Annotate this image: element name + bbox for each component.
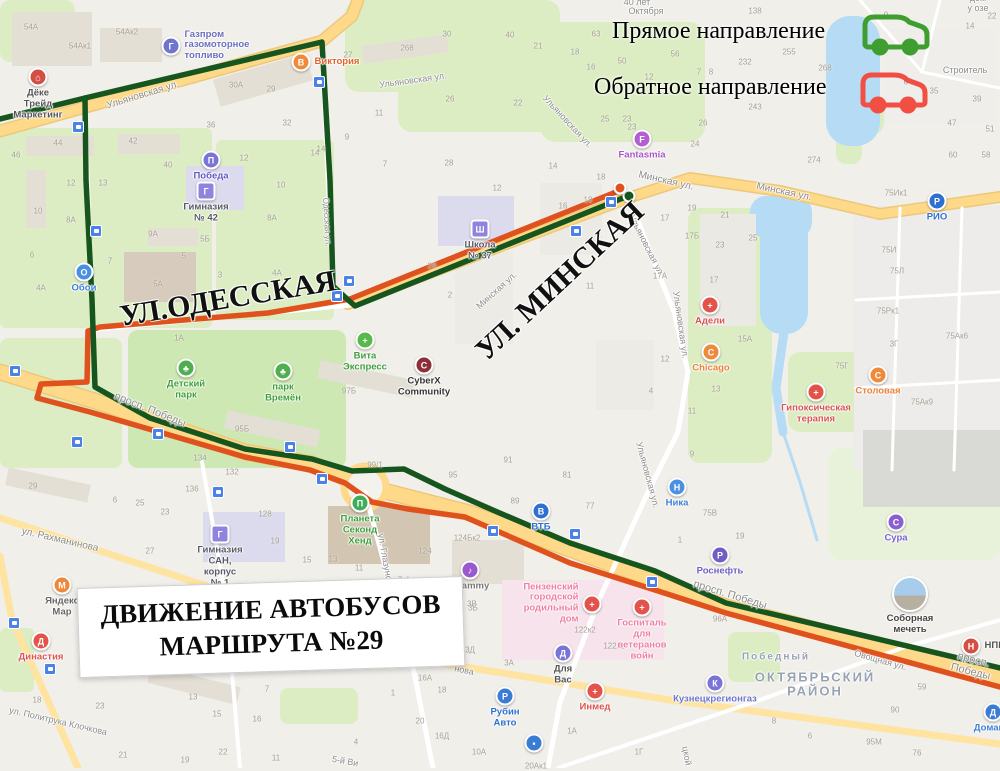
poi-icon[interactable]: Р: [711, 546, 730, 565]
poi-для-вас[interactable]: ДДля Вас: [554, 644, 573, 663]
poi-label: Яндекс Мар: [45, 595, 79, 619]
transit-stop-icon[interactable]: [212, 486, 224, 498]
poi-виктория[interactable]: ВВиктория: [292, 53, 311, 72]
poi-адели[interactable]: +Адели: [701, 296, 720, 315]
transit-stop-icon[interactable]: [569, 528, 581, 540]
poi-icon[interactable]: Г: [162, 37, 181, 56]
poi-label: CyberX Community: [398, 375, 450, 399]
legend-direct-label: Прямое направление: [612, 18, 825, 45]
poi-icon[interactable]: +: [586, 682, 605, 701]
poi-кузнецкрегионгаз[interactable]: ККузнецкрегионгаз: [706, 674, 725, 693]
poi-label: Кузнецкрегионгаз: [673, 693, 757, 706]
poi-icon[interactable]: С: [869, 366, 888, 385]
poi-label: Госпиталь для ветеранов войн: [617, 617, 666, 663]
poi-icon[interactable]: ♣: [177, 359, 196, 378]
poi-icon[interactable]: +: [633, 598, 652, 617]
poi-пензенский[interactable]: +Пензенский городской родильный дом: [583, 595, 602, 614]
poi-icon[interactable]: Г: [211, 525, 230, 544]
poi-label: Детский парк: [167, 378, 205, 402]
poi-label: Ника: [666, 497, 689, 510]
transit-stop-icon[interactable]: [72, 121, 84, 133]
poi-label: Гипоксическая терапия: [781, 402, 851, 426]
poi-соборная-мечеть[interactable]: Соборная мечеть: [892, 576, 928, 612]
transit-stop-icon[interactable]: [44, 663, 56, 675]
poi-label: НПП: [981, 641, 1000, 652]
poi-icon[interactable]: В: [292, 53, 311, 72]
poi-icon[interactable]: ♪: [461, 561, 480, 580]
poi-label: Инмед: [580, 701, 611, 714]
poi-label: Роснефть: [697, 565, 744, 578]
poi-гимназия-сан-[interactable]: ГГимназия САН, корпус № 1: [211, 525, 230, 544]
poi-icon[interactable]: Ш: [471, 220, 490, 239]
poi-icon[interactable]: М: [53, 576, 72, 595]
poi-icon[interactable]: ▪: [525, 734, 544, 753]
poi-icon[interactable]: О: [75, 263, 94, 282]
poi-label: Гимназия № 42: [183, 201, 228, 225]
poi-icon[interactable]: Н: [668, 478, 687, 497]
poi-label: Сура: [884, 532, 907, 545]
transit-stop-icon[interactable]: [570, 225, 582, 237]
poi-label: ВТБ: [531, 521, 550, 534]
poi-icon[interactable]: К: [706, 674, 725, 693]
title-box: ДВИЖЕНИЕ АВТОБУСОВ МАРШРУТА №29: [77, 576, 466, 678]
poi-icon[interactable]: +: [701, 296, 720, 315]
poi-рубин-авто[interactable]: РРубин Авто: [496, 687, 515, 706]
poi-label: Chicago: [692, 362, 729, 375]
poi-label: Fantasmia: [619, 149, 666, 162]
poi-яндекс-мар[interactable]: МЯндекс Мар: [53, 576, 72, 595]
transit-stop-icon[interactable]: [313, 76, 325, 88]
poi-label: Адели: [695, 315, 725, 328]
poi-столовая[interactable]: ССтоловая: [869, 366, 888, 385]
poi-школа-37[interactable]: ШШкола № 37: [471, 220, 490, 239]
poi-label: Школа № 37: [464, 239, 495, 263]
poi-дёке-трейд[interactable]: ⌂Дёке Трейд Маркетинг: [29, 68, 48, 87]
poi-домашн[interactable]: ДДомашн: [984, 703, 1000, 722]
poi-label: Рубин Авто: [490, 706, 519, 730]
poi-рио[interactable]: РРИО: [928, 192, 947, 211]
poi-icon[interactable]: F: [633, 130, 652, 149]
poi-обои[interactable]: ООбои: [75, 263, 94, 282]
poi-label: РИО: [927, 211, 948, 224]
legend: Прямое направление Обратное направление: [592, 0, 992, 130]
poi-label: Вита Экспресс: [343, 350, 387, 374]
poi-icon[interactable]: ▪: [525, 734, 544, 753]
poi-label: Соборная мечеть: [887, 612, 934, 636]
poi-label: Столовая: [855, 385, 900, 398]
transit-stop-icon[interactable]: [487, 525, 499, 537]
poi-icon[interactable]: Г: [197, 182, 216, 201]
poi-label: Домашн: [974, 722, 1000, 735]
poi-label: Газпром газомоторное топливо: [181, 30, 250, 63]
poi-label: Для Вас: [554, 663, 572, 687]
transit-stop-icon[interactable]: [8, 617, 20, 629]
poi-label: Виктория: [311, 57, 360, 68]
poi-детский-парк[interactable]: ♣Детский парк: [177, 359, 196, 378]
poi-icon[interactable]: +: [356, 331, 375, 350]
poi-icon[interactable]: [892, 576, 928, 612]
poi-роснефть[interactable]: РРоснефть: [711, 546, 730, 565]
poi-icon[interactable]: Р: [928, 192, 947, 211]
transit-stop-icon[interactable]: [152, 428, 164, 440]
poi-grammy[interactable]: ♪Grammy: [461, 561, 480, 580]
legend-reverse-label: Обратное направление: [594, 74, 827, 101]
poi-планета[interactable]: ППланета Секонд Хенд: [351, 494, 370, 513]
poi-label: Планета Секонд Хенд: [341, 513, 380, 548]
poi-госпиталь-для[interactable]: +Госпиталь для ветеранов войн: [633, 598, 652, 617]
poi-сура[interactable]: ССура: [887, 513, 906, 532]
poi-втб[interactable]: ВВТБ: [532, 502, 551, 521]
poi-icon[interactable]: +: [583, 595, 602, 614]
poi-icon[interactable]: С: [887, 513, 906, 532]
poi-fantasmia[interactable]: FFantasmia: [633, 130, 652, 149]
poi-гипоксическая[interactable]: +Гипоксическая терапия: [807, 383, 826, 402]
direct-direction-car-icon: [856, 4, 936, 60]
poi-инмед[interactable]: +Инмед: [586, 682, 605, 701]
poi-парк-времён[interactable]: ♣парк Времён: [274, 362, 293, 381]
transit-stop-icon[interactable]: [284, 441, 296, 453]
poi-icon[interactable]: ♣: [274, 362, 293, 381]
transit-stop-icon[interactable]: [343, 275, 355, 287]
transit-stop-icon[interactable]: [316, 473, 328, 485]
poi-нпп[interactable]: ННПП: [962, 637, 981, 656]
poi-ника[interactable]: ННика: [668, 478, 687, 497]
title-line-2: МАРШРУТА №29: [159, 623, 384, 664]
title-line-1: ДВИЖЕНИЕ АВТОБУСОВ: [100, 588, 441, 632]
poi-гимназия-42[interactable]: ГГимназия № 42: [197, 182, 216, 201]
poi-icon[interactable]: В: [532, 502, 551, 521]
poi-icon[interactable]: Д: [32, 632, 51, 651]
poi-icon[interactable]: Р: [496, 687, 515, 706]
poi-icon[interactable]: +: [807, 383, 826, 402]
poi-icon[interactable]: Д: [984, 703, 1000, 722]
poi-label: Победа: [193, 170, 228, 183]
reverse-direction-car-icon: [854, 62, 934, 118]
poi-label: Династия: [19, 651, 64, 664]
poi-icon[interactable]: ⌂: [29, 68, 48, 87]
poi-icon[interactable]: C: [415, 356, 434, 375]
poi-cyberx[interactable]: CCyberX Community: [415, 356, 434, 375]
poi-icon[interactable]: П: [202, 151, 221, 170]
poi-вита-экспресс[interactable]: +Вита Экспресс: [356, 331, 375, 350]
poi-газпром[interactable]: ГГазпром газомоторное топливо: [162, 37, 181, 56]
transit-stop-icon[interactable]: [71, 436, 83, 448]
transit-stop-icon[interactable]: [90, 225, 102, 237]
poi-icon[interactable]: C: [702, 343, 721, 362]
poi-label: Пензенский городской родильный дом: [523, 582, 582, 626]
poi-label: Обои: [72, 282, 97, 295]
transit-stop-icon[interactable]: [9, 365, 21, 377]
poi-icon[interactable]: П: [351, 494, 370, 513]
poi-icon[interactable]: Д: [554, 644, 573, 663]
poi-chicago[interactable]: CChicago: [702, 343, 721, 362]
poi-icon[interactable]: Н: [962, 637, 981, 656]
poi-label: Дёке Трейд Маркетинг: [13, 87, 62, 122]
transit-stop-icon[interactable]: [646, 576, 658, 588]
poi-победа[interactable]: ППобеда: [202, 151, 221, 170]
poi-династия[interactable]: ДДинастия: [32, 632, 51, 651]
poi-label: парк Времён: [265, 381, 301, 405]
